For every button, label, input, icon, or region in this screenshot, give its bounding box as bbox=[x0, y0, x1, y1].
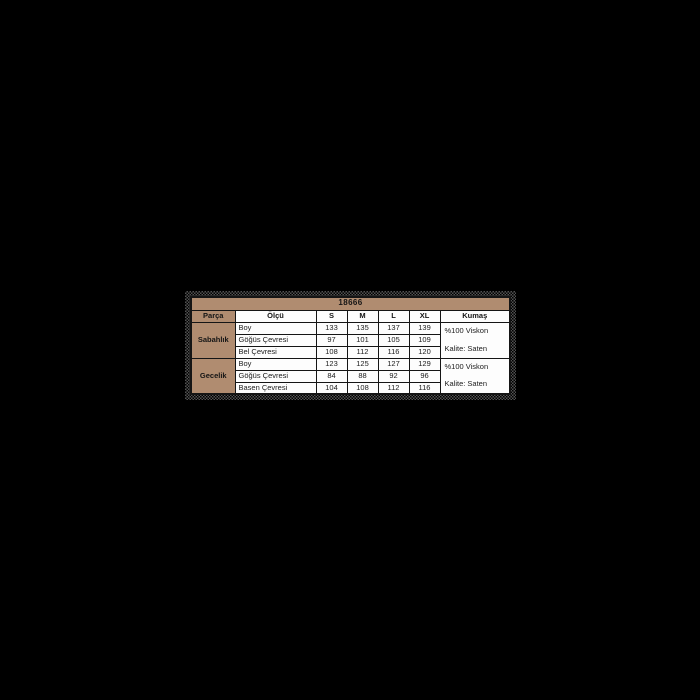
table-row: Sabahlık Boy 133 135 137 139 %100 Viskon… bbox=[191, 322, 510, 334]
value-xl: 120 bbox=[409, 346, 440, 358]
measure-label: Basen Çevresi bbox=[235, 382, 316, 394]
value-xl: 109 bbox=[409, 334, 440, 346]
value-l: 92 bbox=[378, 370, 409, 382]
col-header-xl: XL bbox=[409, 310, 440, 322]
group-name-sabahlik: Sabahlık bbox=[191, 322, 235, 358]
title-row: 18666 bbox=[191, 297, 510, 310]
measure-label: Boy bbox=[235, 322, 316, 334]
col-header-l: L bbox=[378, 310, 409, 322]
measure-label: Bel Çevresi bbox=[235, 346, 316, 358]
value-m: 88 bbox=[347, 370, 378, 382]
value-l: 112 bbox=[378, 382, 409, 394]
fabric-line-2: Kalite: Saten bbox=[445, 345, 506, 353]
value-l: 105 bbox=[378, 334, 409, 346]
size-chart-table: 18666 Parça Ölçü S M L XL Kumaş Sabahlık… bbox=[190, 296, 511, 395]
size-chart-wrapper: 18666 Parça Ölçü S M L XL Kumaş Sabahlık… bbox=[185, 291, 516, 400]
value-s: 104 bbox=[316, 382, 347, 394]
value-l: 127 bbox=[378, 358, 409, 370]
col-header-kumas: Kumaş bbox=[440, 310, 510, 322]
fabric-cell-gecelik: %100 Viskon Kalite: Saten bbox=[440, 358, 510, 394]
value-m: 112 bbox=[347, 346, 378, 358]
value-m: 125 bbox=[347, 358, 378, 370]
col-header-olcu: Ölçü bbox=[235, 310, 316, 322]
value-s: 108 bbox=[316, 346, 347, 358]
value-xl: 139 bbox=[409, 322, 440, 334]
value-m: 101 bbox=[347, 334, 378, 346]
value-l: 137 bbox=[378, 322, 409, 334]
fabric-line-1: %100 Viskon bbox=[445, 327, 506, 335]
value-l: 116 bbox=[378, 346, 409, 358]
measure-label: Göğüs Çevresi bbox=[235, 370, 316, 382]
value-m: 135 bbox=[347, 322, 378, 334]
value-s: 133 bbox=[316, 322, 347, 334]
black-canvas: 18666 Parça Ölçü S M L XL Kumaş Sabahlık… bbox=[0, 0, 700, 700]
value-xl: 116 bbox=[409, 382, 440, 394]
product-code: 18666 bbox=[191, 297, 510, 310]
table-row: Gecelik Boy 123 125 127 129 %100 Viskon … bbox=[191, 358, 510, 370]
value-m: 108 bbox=[347, 382, 378, 394]
value-xl: 96 bbox=[409, 370, 440, 382]
col-header-parca: Parça bbox=[191, 310, 235, 322]
measure-label: Göğüs Çevresi bbox=[235, 334, 316, 346]
column-header-row: Parça Ölçü S M L XL Kumaş bbox=[191, 310, 510, 322]
value-s: 97 bbox=[316, 334, 347, 346]
col-header-s: S bbox=[316, 310, 347, 322]
fabric-line-2: Kalite: Saten bbox=[445, 380, 506, 388]
col-header-m: M bbox=[347, 310, 378, 322]
measure-label: Boy bbox=[235, 358, 316, 370]
value-s: 123 bbox=[316, 358, 347, 370]
value-s: 84 bbox=[316, 370, 347, 382]
value-xl: 129 bbox=[409, 358, 440, 370]
group-name-gecelik: Gecelik bbox=[191, 358, 235, 394]
fabric-line-1: %100 Viskon bbox=[445, 363, 506, 371]
fabric-cell-sabahlik: %100 Viskon Kalite: Saten bbox=[440, 322, 510, 358]
